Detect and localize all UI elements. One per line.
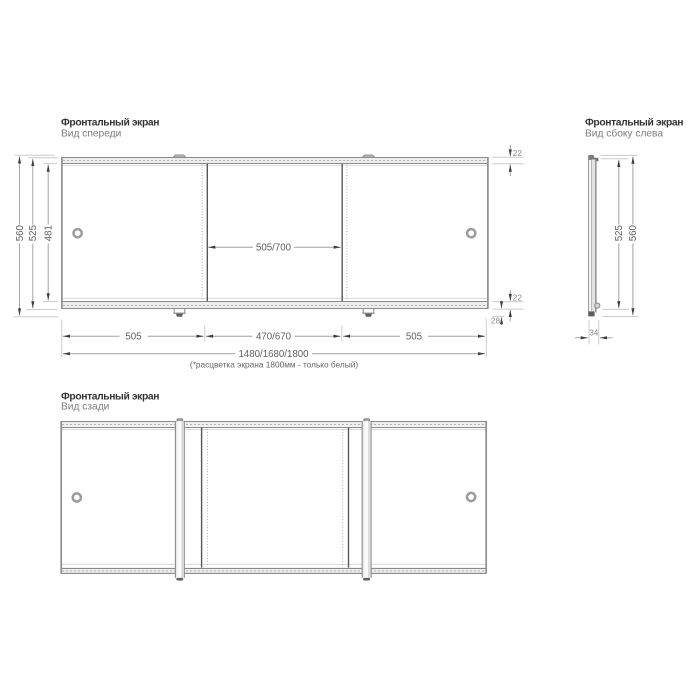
- svg-text:Фронтальный экран: Фронтальный экран: [61, 118, 159, 129]
- svg-text:Вид сбоку слева: Вид сбоку слева: [585, 127, 663, 139]
- svg-text:(*расцветка экрана 1800мм - то: (*расцветка экрана 1800мм - только белый…: [190, 359, 359, 369]
- svg-text:505/700: 505/700: [256, 243, 292, 254]
- svg-text:505: 505: [406, 332, 422, 343]
- svg-text:34: 34: [589, 328, 599, 337]
- svg-text:505: 505: [125, 332, 141, 343]
- svg-text:560: 560: [15, 225, 26, 242]
- svg-text:22: 22: [513, 293, 523, 302]
- svg-text:470/670: 470/670: [256, 332, 292, 343]
- svg-text:Вид сзади: Вид сзади: [61, 401, 109, 412]
- svg-text:481: 481: [44, 225, 55, 241]
- svg-text:525: 525: [614, 225, 625, 241]
- svg-text:525: 525: [28, 225, 39, 241]
- svg-text:28: 28: [491, 317, 501, 326]
- svg-text:22: 22: [513, 149, 523, 158]
- svg-text:Фронтальный экран: Фронтальный экран: [585, 118, 683, 129]
- svg-text:Вид спереди: Вид спереди: [61, 128, 121, 139]
- svg-text:560: 560: [628, 225, 639, 242]
